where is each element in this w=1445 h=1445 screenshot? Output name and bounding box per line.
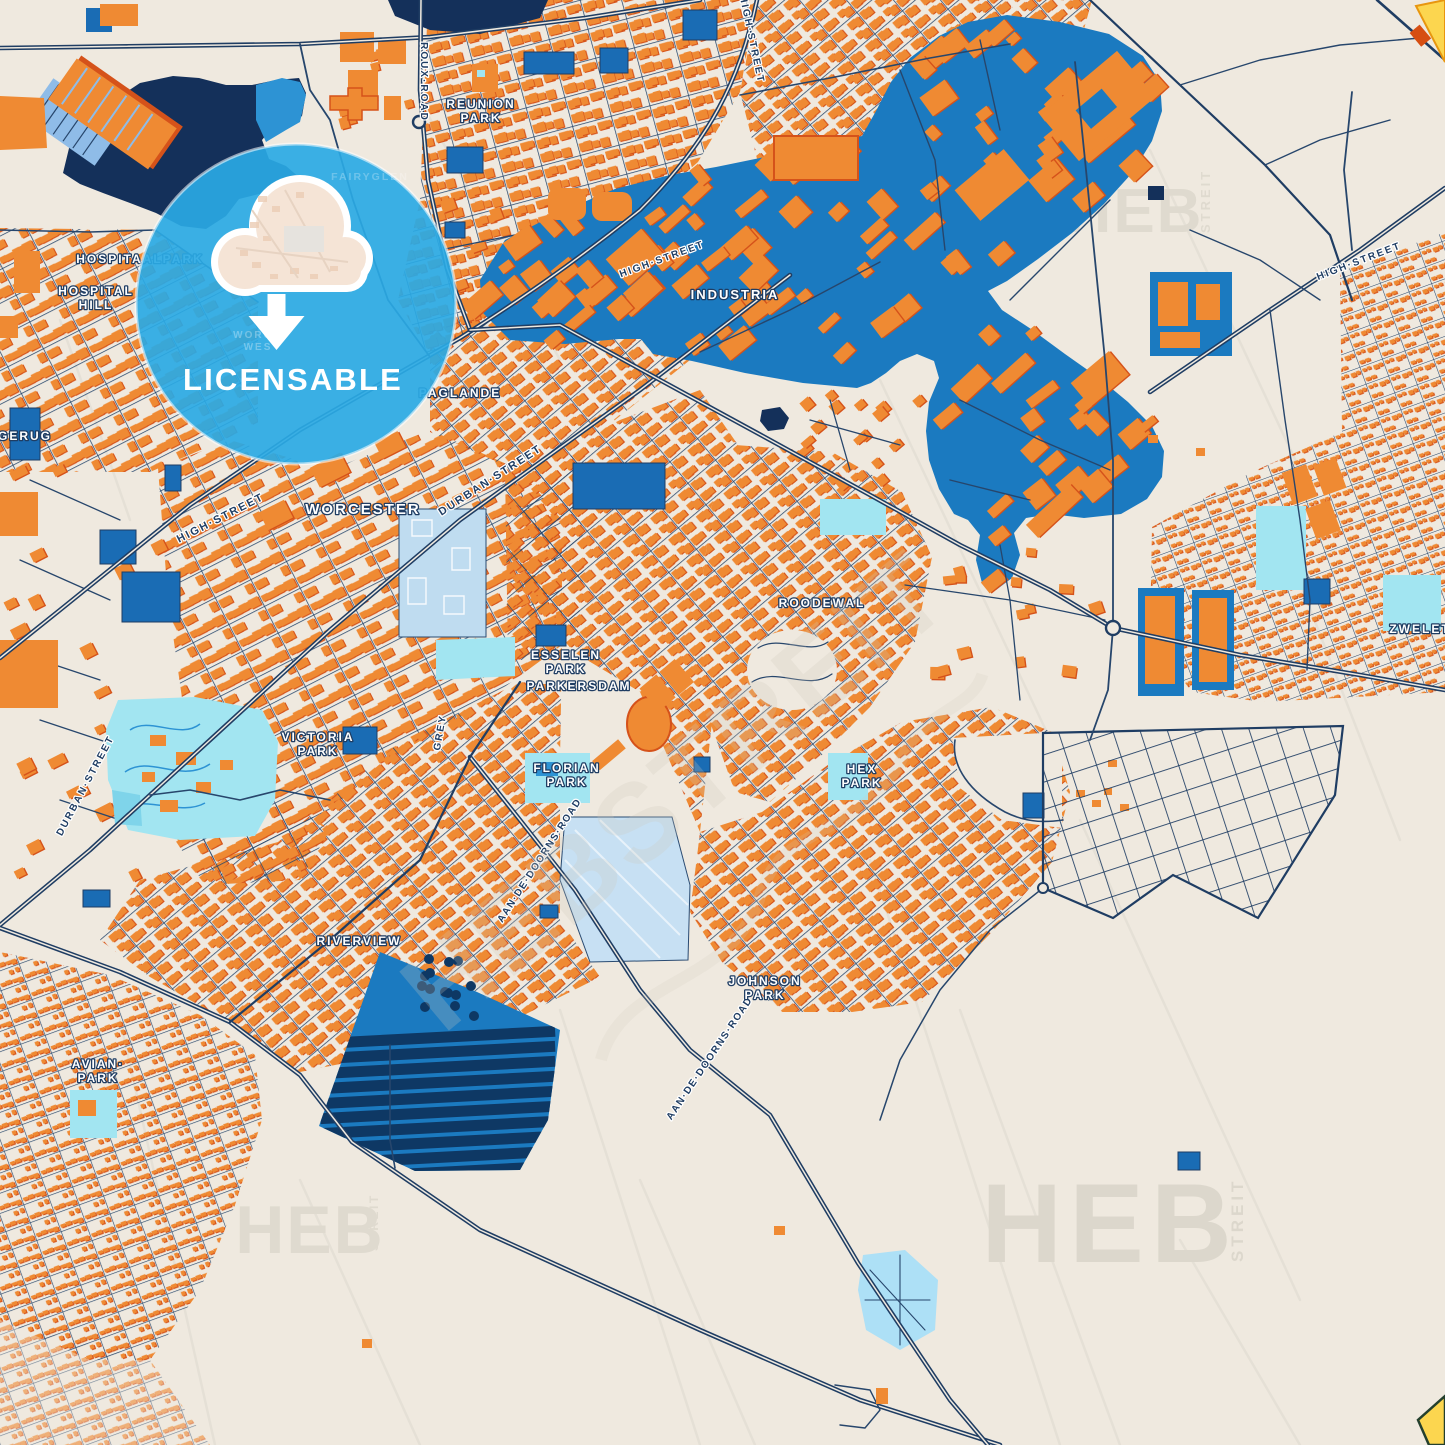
svg-text:ROUX·ROAD: ROUX·ROAD [418,42,429,122]
svg-text:HEB: HEB [981,1161,1238,1286]
svg-text:HOSPITAL: HOSPITAL [58,284,134,298]
svg-text:STREIT: STREIT [1228,1178,1247,1262]
svg-text:ZWELETE: ZWELETE [1389,622,1445,636]
svg-text:HEB: HEB [235,1192,385,1268]
svg-text:PARK: PARK [297,744,338,758]
svg-text:JOHNSON: JOHNSON [728,974,801,988]
svg-text:STREIT: STREIT [1198,169,1213,233]
svg-text:AVIAN·: AVIAN· [72,1057,124,1071]
svg-text:LICENSABLE: LICENSABLE [183,362,403,397]
svg-text:WES: WES [244,342,273,353]
svg-text:PARK: PARK [77,1071,118,1085]
svg-text:PARKERSDAM: PARKERSDAM [526,679,631,693]
svg-text:REUNION: REUNION [446,97,515,111]
svg-text:HEX: HEX [847,762,878,776]
svg-text:GERUG: GERUG [0,429,52,443]
svg-text:VICTORIA: VICTORIA [281,730,354,744]
svg-text:PARK: PARK [460,111,501,125]
svg-text:WORCESTER: WORCESTER [305,501,421,518]
svg-text:PARK: PARK [744,988,785,1002]
svg-text:STREIT: STREIT [367,1193,381,1251]
svg-text:PARK: PARK [545,662,586,676]
svg-text:FLORIAN: FLORIAN [533,761,600,775]
svg-text:INDUSTRIA: INDUSTRIA [691,287,780,302]
svg-text:HILL: HILL [79,298,114,312]
svg-text:ESSELEN: ESSELEN [531,648,601,662]
svg-text:RIVERVIEW: RIVERVIEW [316,934,401,948]
svg-text:FAIRYGLEN: FAIRYGLEN [331,171,409,183]
